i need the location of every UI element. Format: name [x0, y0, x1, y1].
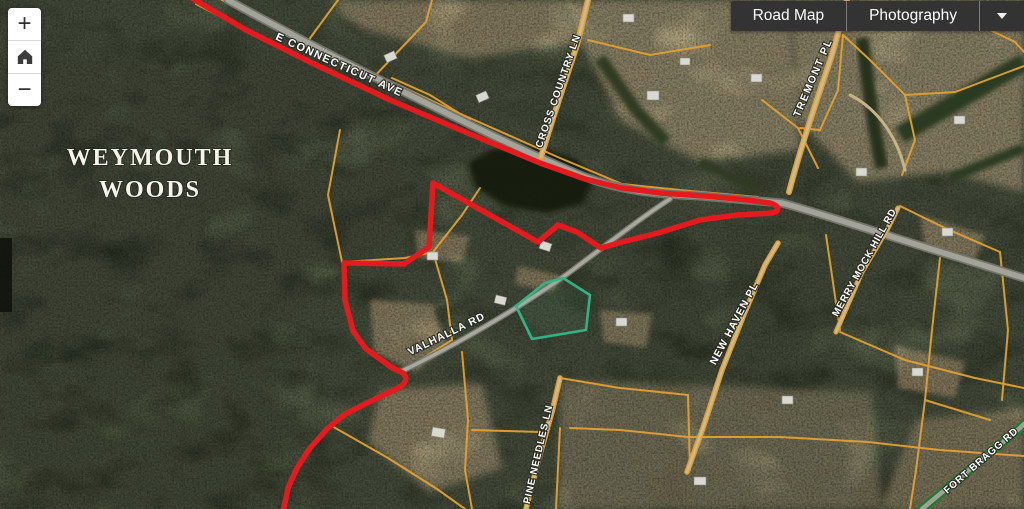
zoom-out-button[interactable]: −	[8, 73, 41, 106]
zoom-in-button[interactable]: +	[8, 8, 41, 40]
basemap-road-map-button[interactable]: Road Map	[731, 1, 847, 31]
home-button[interactable]	[8, 40, 41, 73]
map-navigation-control: + −	[8, 8, 41, 106]
caret-down-icon	[997, 13, 1007, 19]
basemap-dropdown-button[interactable]	[980, 1, 1024, 31]
imagery-gap-strip	[0, 238, 12, 312]
basemap-switcher: Road Map Photography	[731, 1, 1024, 31]
place-label-weymouth: WEYMOUTH	[67, 145, 234, 171]
map-app-window: WEYMOUTH WOODS E CONNECTICUT AVE CROSS C…	[0, 0, 1024, 509]
basemap-photography-button[interactable]: Photography	[847, 1, 979, 31]
home-icon	[16, 48, 34, 66]
map-canvas[interactable]: WEYMOUTH WOODS E CONNECTICUT AVE CROSS C…	[0, 0, 1024, 509]
place-label-woods: WOODS	[99, 177, 201, 203]
